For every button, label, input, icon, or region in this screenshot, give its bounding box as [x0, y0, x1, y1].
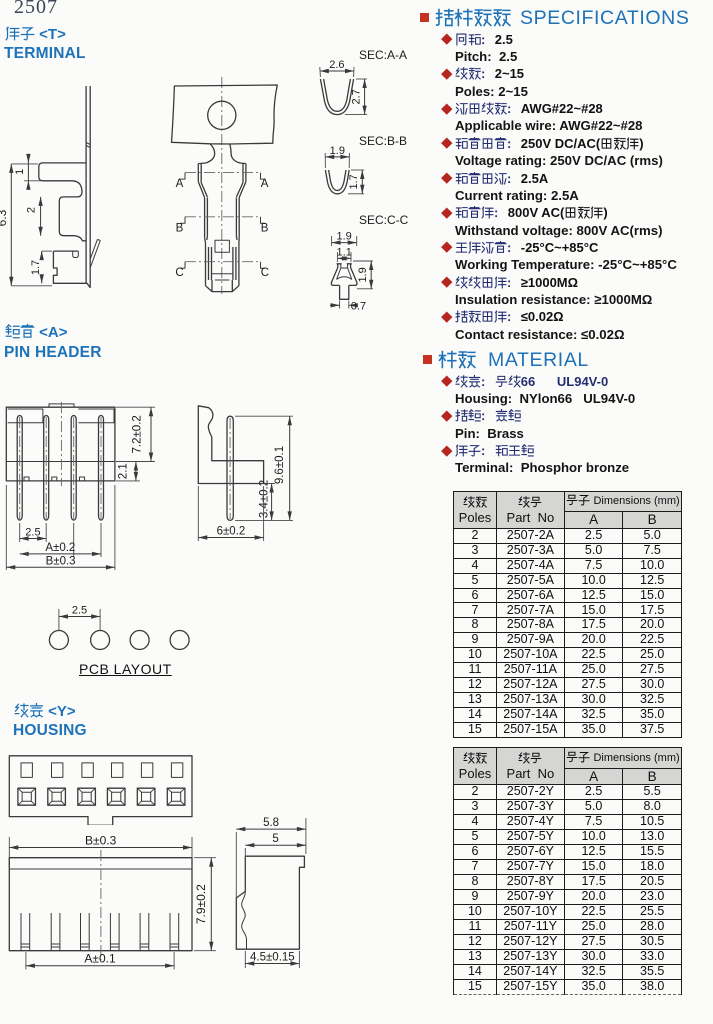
svg-text:C: C	[175, 267, 183, 279]
svg-text:A: A	[261, 178, 269, 190]
svg-text:2.7: 2.7	[351, 89, 363, 104]
svg-text:6.3: 6.3	[0, 209, 9, 226]
svg-text:A±0.2: A±0.2	[45, 542, 75, 554]
svg-text:1.7: 1.7	[30, 260, 42, 275]
svg-text:7.9±0.2: 7.9±0.2	[194, 884, 208, 924]
svg-text:7.2±0.2: 7.2±0.2	[132, 415, 144, 453]
svg-text:3.4±0.2: 3.4±0.2	[258, 480, 270, 518]
svg-text:A: A	[176, 178, 184, 190]
svg-text:B: B	[261, 222, 269, 234]
svg-text:SEC:C-C: SEC:C-C	[359, 213, 409, 227]
svg-text:A±0.1: A±0.1	[84, 952, 116, 966]
svg-text:9.6±0.1: 9.6±0.1	[274, 446, 286, 484]
svg-text:2: 2	[26, 207, 38, 213]
svg-text:1.9: 1.9	[330, 145, 345, 157]
svg-text:B±0.3: B±0.3	[85, 834, 117, 848]
svg-text:5.8: 5.8	[263, 817, 279, 829]
svg-text:B: B	[176, 222, 184, 234]
svg-text:SEC:A-A: SEC:A-A	[359, 48, 407, 62]
svg-text:C: C	[261, 267, 269, 279]
svg-text:B±0.3: B±0.3	[46, 555, 76, 567]
svg-text:1.7: 1.7	[348, 174, 360, 189]
svg-text:6±0.2: 6±0.2	[217, 526, 246, 538]
svg-text:1: 1	[14, 169, 26, 175]
svg-text:0.7: 0.7	[351, 300, 366, 312]
svg-text:5: 5	[272, 833, 278, 845]
svg-text:1.9: 1.9	[337, 231, 352, 243]
svg-text:2.5: 2.5	[72, 605, 87, 617]
svg-text:4.5±0.15: 4.5±0.15	[250, 952, 295, 964]
svg-text:2.6: 2.6	[329, 59, 344, 71]
svg-text:SEC:B-B: SEC:B-B	[359, 134, 407, 148]
svg-text:1.9: 1.9	[357, 267, 369, 282]
svg-text:1.1: 1.1	[337, 246, 352, 258]
svg-text:2.5: 2.5	[25, 527, 40, 539]
svg-text:2.1: 2.1	[118, 463, 130, 479]
